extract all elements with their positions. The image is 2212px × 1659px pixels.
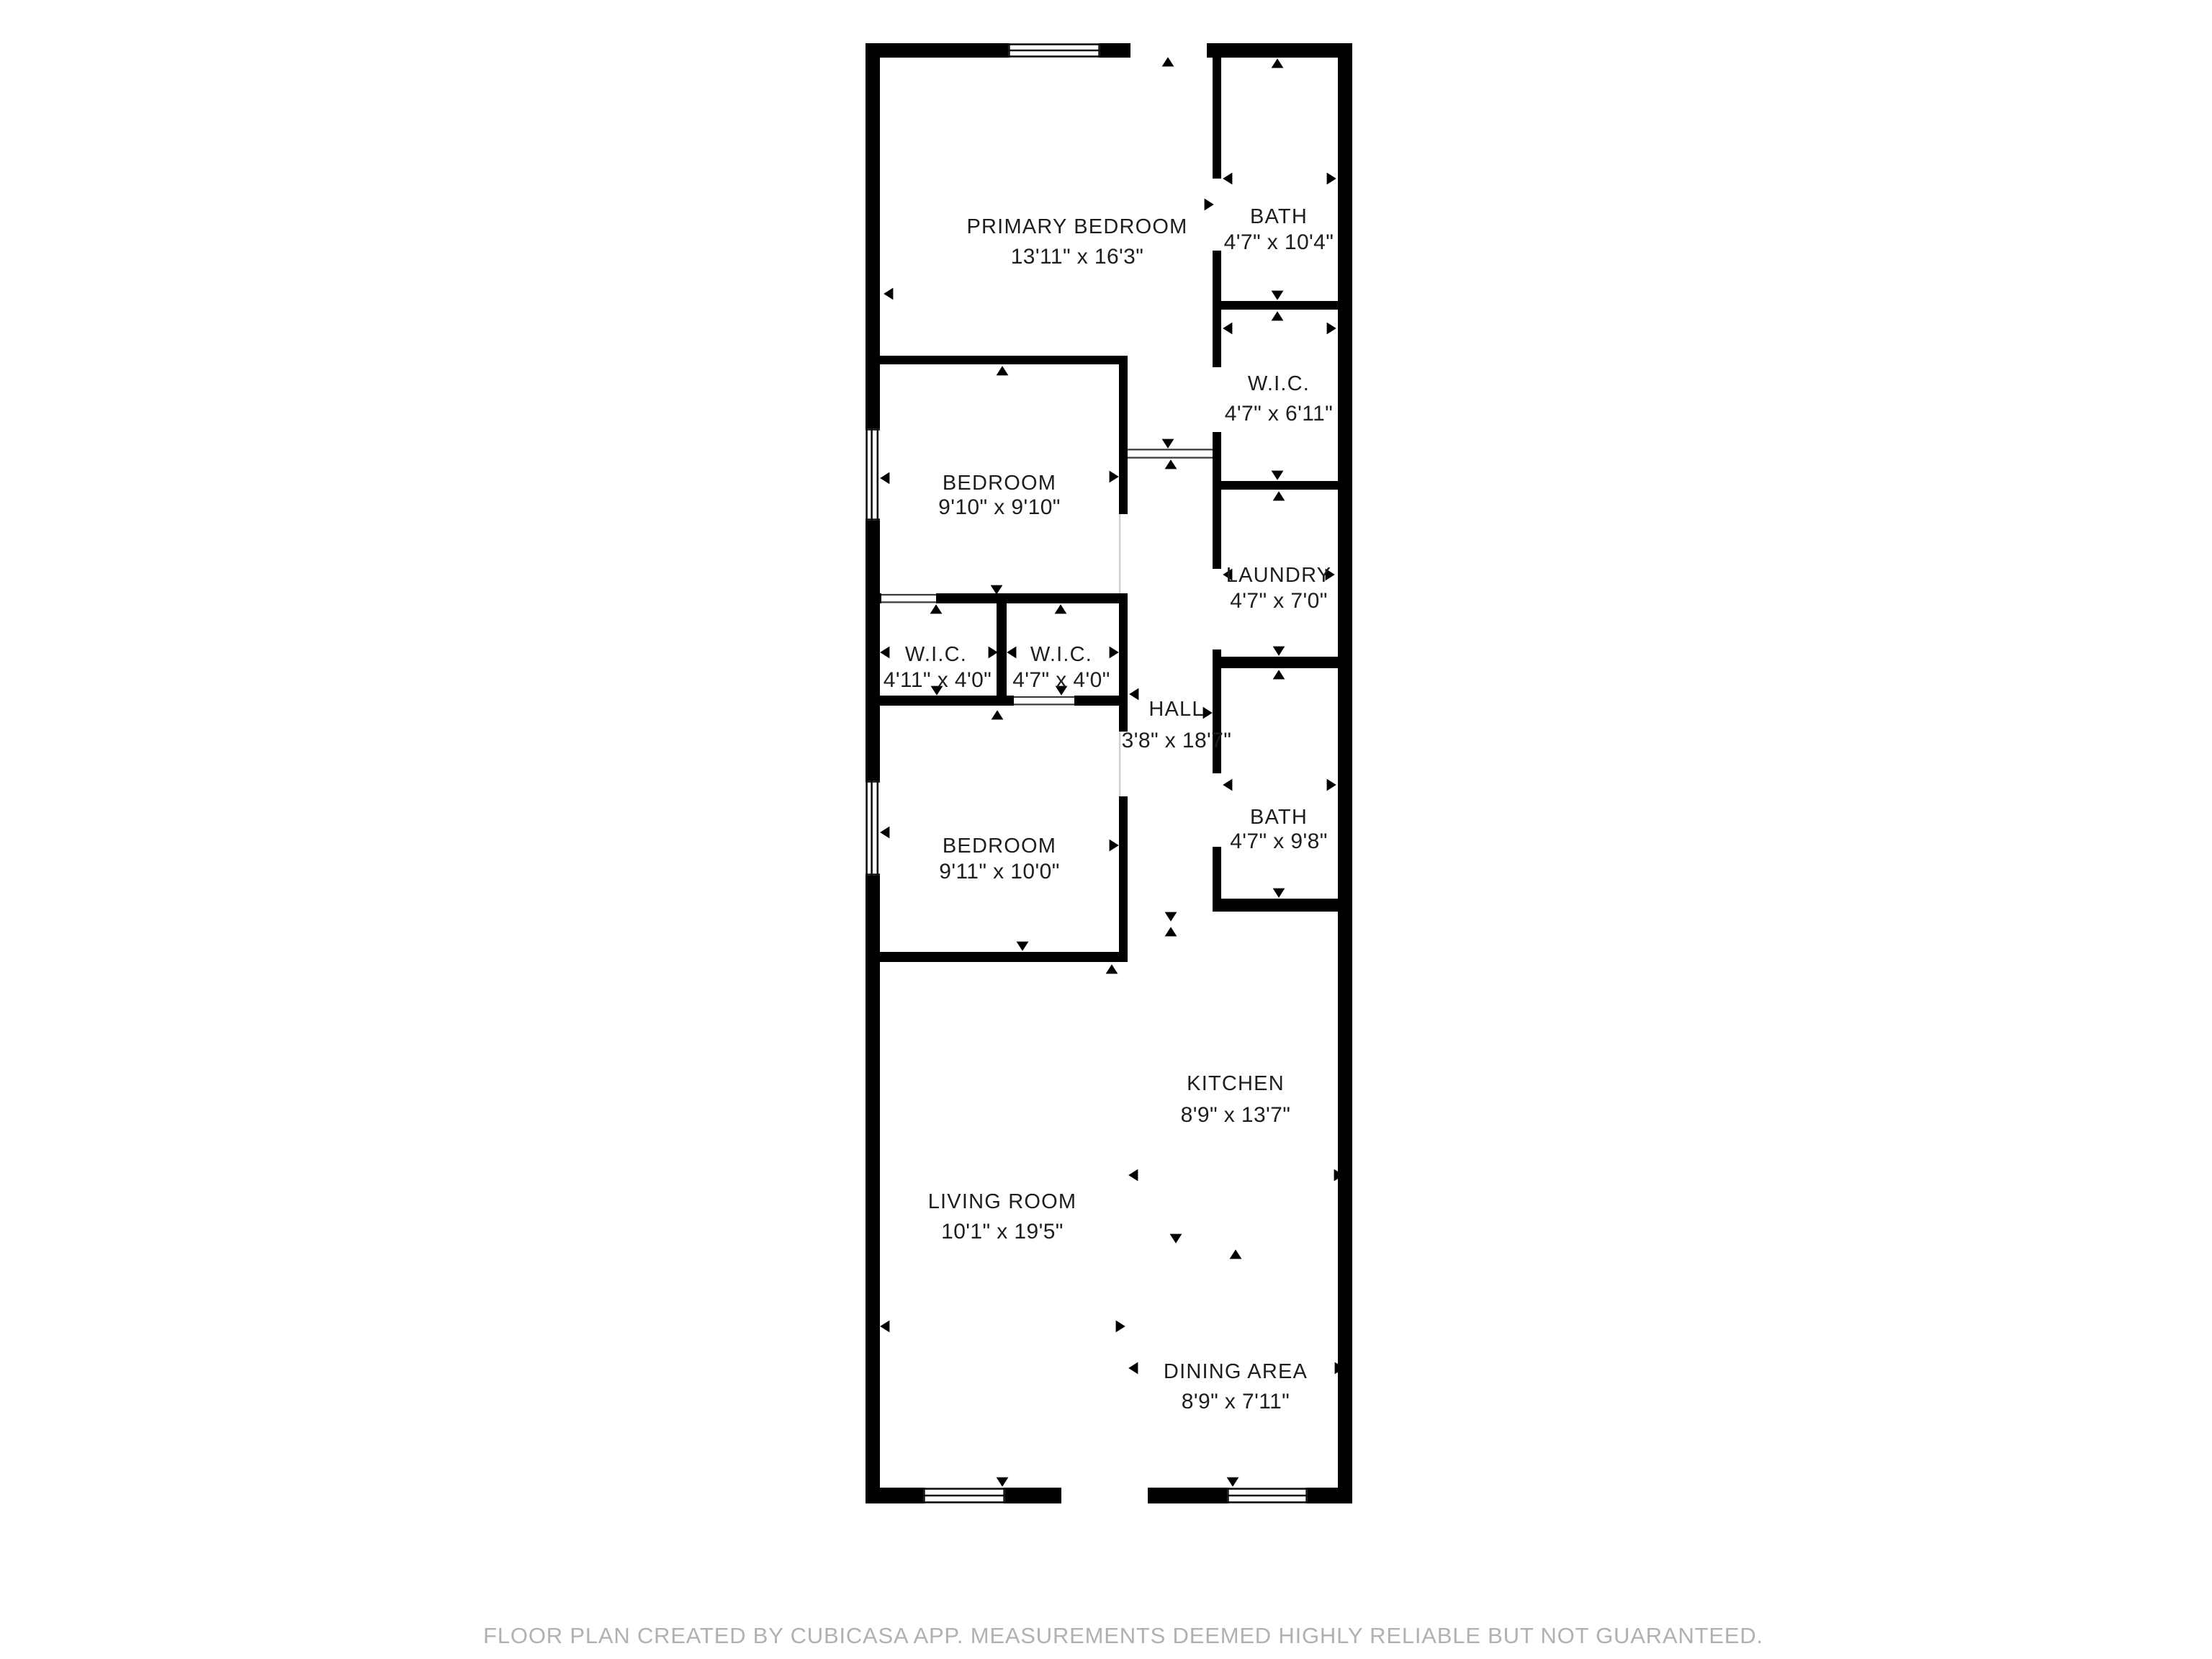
wall-top-right-segment bbox=[1207, 43, 1352, 58]
room-dims-wic-left-1: 4'11" x 4'0" bbox=[884, 668, 992, 692]
room-dims-living-room: 10'1" x 19'5" bbox=[941, 1220, 1064, 1244]
opening-wic2-door bbox=[1014, 696, 1074, 706]
wall-bath2-bottom bbox=[1213, 899, 1352, 912]
room-label-bedroom: BEDROOM bbox=[943, 472, 1056, 495]
room-label-dining-area: DINING AREA bbox=[1164, 1360, 1308, 1383]
room-label-bedroom-2: BEDROOM bbox=[943, 835, 1056, 858]
wall-wic-bottom-right bbox=[1074, 696, 1128, 706]
room-label-wic-left-2: W.I.C. bbox=[1030, 643, 1092, 666]
wall-between-wics bbox=[997, 603, 1007, 706]
wall-bedroom-hall-upper bbox=[1119, 356, 1128, 514]
room-label-hall: HALL bbox=[1148, 698, 1204, 721]
wall-bedroom-bottom bbox=[936, 593, 1128, 603]
wall-bath-bottom bbox=[1213, 301, 1352, 310]
wall-primary-bedroom-bottom bbox=[866, 356, 1128, 364]
wall-wic-bottom-left bbox=[866, 696, 1014, 706]
wall-bedroom-hall-mid bbox=[1119, 593, 1128, 732]
opening-hall-top bbox=[1128, 449, 1213, 459]
window-living-room-bottom bbox=[923, 1488, 1005, 1503]
wall-bedroom-hall-lower bbox=[1119, 796, 1128, 962]
room-dims-wic-right: 4'7" x 6'11" bbox=[1225, 402, 1333, 426]
wall-wic-right-bottom bbox=[1213, 481, 1352, 490]
room-label-wic-left-1: W.I.C. bbox=[905, 643, 967, 666]
wall-bottom-segment-3 bbox=[1148, 1488, 1227, 1503]
floor-plan-canvas: PRIMARY BEDROOM 13'11" x 16'3" BATH 4'7"… bbox=[0, 0, 2212, 1659]
wall-bottom-segment-4 bbox=[1308, 1488, 1352, 1503]
room-label-living-room: LIVING ROOM bbox=[928, 1190, 1077, 1213]
footer-disclaimer: FLOOR PLAN CREATED BY CUBICASA APP. MEAS… bbox=[483, 1623, 1763, 1648]
room-dims-bedroom-2: 9'11" x 10'0" bbox=[939, 860, 1060, 884]
wall-top-mid-segment bbox=[1100, 43, 1130, 58]
room-label-laundry: LAUNDRY bbox=[1226, 564, 1331, 587]
wall-left-lower-segment bbox=[866, 876, 880, 1503]
room-dims-wic-left-2: 4'7" x 4'0" bbox=[1012, 668, 1110, 692]
room-dims-laundry: 4'7" x 7'0" bbox=[1230, 589, 1328, 613]
room-dims-bath-2: 4'7" x 9'8" bbox=[1230, 829, 1328, 853]
room-label-bath: BATH bbox=[1250, 205, 1308, 228]
window-bedroom-left bbox=[866, 428, 880, 521]
wall-laundry-bottom bbox=[1213, 657, 1352, 668]
wall-bottom-segment-1 bbox=[866, 1488, 923, 1503]
room-dims-dining-area: 8'9" x 7'11" bbox=[1182, 1390, 1290, 1413]
room-label-primary-bedroom: PRIMARY BEDROOM bbox=[967, 215, 1188, 238]
window-dining-bottom bbox=[1227, 1488, 1308, 1503]
room-label-wic-right: W.I.C. bbox=[1248, 372, 1310, 395]
room-dims-bedroom: 9'10" x 9'10" bbox=[938, 495, 1061, 519]
wall-left-upper-segment bbox=[866, 43, 880, 428]
room-dims-primary-bedroom: 13'11" x 16'3" bbox=[1011, 245, 1144, 269]
window-primary-bedroom-top bbox=[1008, 43, 1100, 58]
wall-hall-bath-segment bbox=[1213, 58, 1221, 179]
wall-left-mid-segment bbox=[866, 521, 880, 781]
wall-hall-laundry-segment bbox=[1213, 432, 1221, 569]
wall-bedroom-bottom-left-stub bbox=[866, 593, 881, 603]
wall-bottom-segment-2 bbox=[1005, 1488, 1061, 1503]
room-label-kitchen: KITCHEN bbox=[1187, 1072, 1285, 1095]
room-label-bath-2: BATH bbox=[1250, 806, 1308, 829]
wall-right bbox=[1338, 43, 1352, 1503]
room-dims-bath: 4'7" x 10'4" bbox=[1224, 230, 1334, 254]
wall-top-left-segment bbox=[866, 43, 1008, 58]
room-dims-kitchen: 8'9" x 13'7" bbox=[1181, 1103, 1291, 1127]
wall-bedroom2-bottom bbox=[866, 952, 1128, 962]
window-bedroom2-left bbox=[866, 781, 880, 876]
room-dims-hall: 3'8" x 18'7" bbox=[1122, 729, 1232, 752]
opening-wic1-door bbox=[881, 593, 936, 603]
